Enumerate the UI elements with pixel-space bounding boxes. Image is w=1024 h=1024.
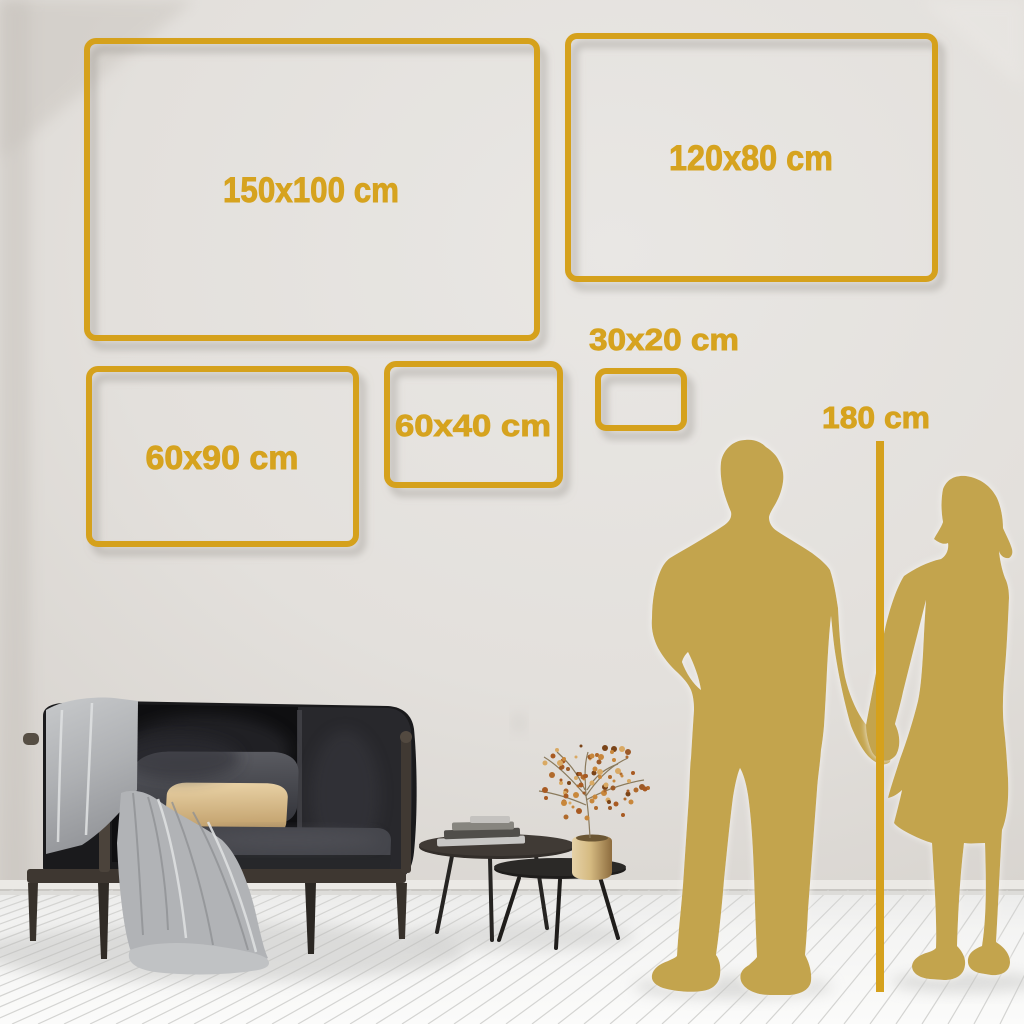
svg-text:180 cm: 180 cm (822, 400, 930, 435)
svg-text:60x90 cm: 60x90 cm (146, 439, 299, 476)
svg-text:60x40 cm: 60x40 cm (395, 408, 551, 443)
svg-text:30x20 cm: 30x20 cm (589, 322, 739, 357)
svg-text:150x100 cm: 150x100 cm (223, 171, 399, 210)
svg-text:120x80 cm: 120x80 cm (669, 139, 833, 178)
